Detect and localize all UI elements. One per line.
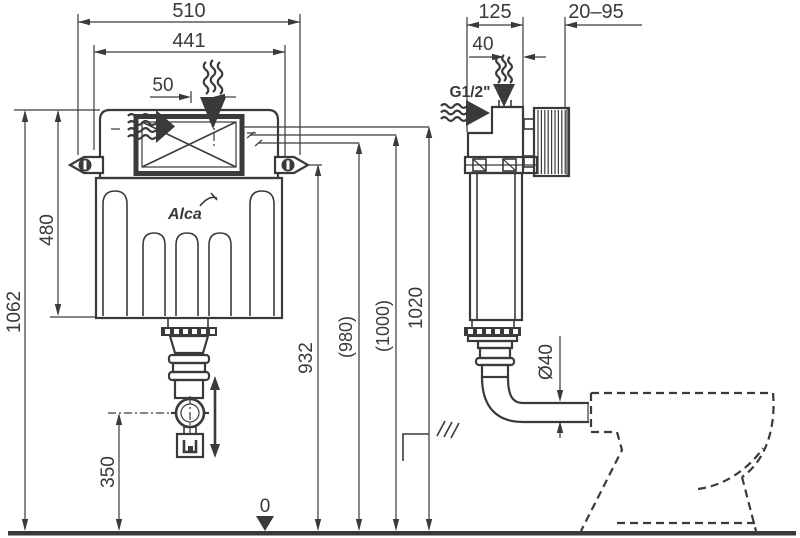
- dim-1020-label: 1020: [406, 287, 427, 329]
- ribbed-band: [524, 108, 569, 176]
- side-inlet-right-arrow-icon: [441, 100, 490, 126]
- dim-1000-label: (1000): [373, 300, 393, 352]
- front-view: Alca: [4, 0, 432, 531]
- dim-inlet-depth-offset: 40: [469, 34, 546, 60]
- body-arch: [209, 233, 231, 316]
- dim-510-label: 510: [172, 0, 205, 22]
- dim-ref-980: (980): [255, 140, 362, 531]
- dim-cistern-height: 480: [37, 110, 96, 317]
- body-arch: [250, 191, 274, 316]
- adjustability-arrow-icon: [210, 376, 220, 458]
- dim-20-95-label: 20–95: [568, 1, 624, 23]
- pipe-collar: [169, 355, 209, 363]
- dim-350-label: 350: [98, 456, 119, 488]
- dim-125-label: 125: [478, 1, 511, 23]
- body-arch: [103, 191, 127, 316]
- dim-480-label: 480: [37, 214, 58, 246]
- side-inlet-down-arrow-icon: [493, 55, 515, 107]
- floor-line: [8, 531, 796, 536]
- dim-980-label: (980): [336, 316, 356, 358]
- dim-932-label: 932: [296, 342, 317, 374]
- dim-bracket-height: 932: [296, 164, 321, 531]
- fixing-block: [524, 119, 534, 129]
- dim-1062-label: 1062: [4, 291, 25, 333]
- elbow-outer: [482, 377, 523, 422]
- dim-40-label: 40: [472, 34, 493, 55]
- body-arch: [176, 233, 198, 316]
- front-mounting-brackets: [70, 157, 322, 173]
- dim-inner-width: 441: [94, 30, 285, 158]
- front-cistern-top: [100, 110, 278, 178]
- pipe-section: [175, 380, 203, 398]
- toilet-bowl-outline: [581, 393, 774, 531]
- pipe-collar: [169, 372, 209, 380]
- zero-label: 0: [260, 496, 271, 517]
- brand-logo-swoosh: [200, 197, 217, 206]
- side-frame-profile: [465, 100, 537, 320]
- level-triangle-icon: [256, 516, 274, 531]
- brand-logo: Alca: [167, 206, 202, 223]
- dim-outlet-height: 350: [98, 413, 176, 531]
- front-cistern-body: Alca: [96, 178, 282, 318]
- technical-drawing-concealed-cistern: Alca: [0, 0, 800, 538]
- drawing-canvas: Alca: [0, 0, 800, 538]
- brand-logo-swoosh: [211, 193, 217, 200]
- dim-50-label: 50: [152, 75, 173, 96]
- floor-level-marker: 0: [256, 496, 274, 531]
- elbow-inner: [508, 377, 523, 403]
- dim-overall-width: 510: [78, 0, 300, 155]
- dim-d40-label: Ø40: [536, 344, 557, 380]
- dim-ref-1000: (1000): [247, 132, 399, 531]
- dim-wall-thickness-range: 20–95: [565, 1, 642, 107]
- inlet-thread-label: G1/2": [450, 84, 491, 101]
- front-flush-pipe-assembly: [161, 318, 220, 458]
- bottom-bracket: [177, 434, 203, 457]
- pipe-section: [173, 363, 205, 372]
- side-view: G1/2" 125 20–95 40: [403, 1, 774, 531]
- dim-441-label: 441: [172, 30, 205, 52]
- support-bracket: [403, 434, 429, 461]
- body-arch: [143, 233, 165, 316]
